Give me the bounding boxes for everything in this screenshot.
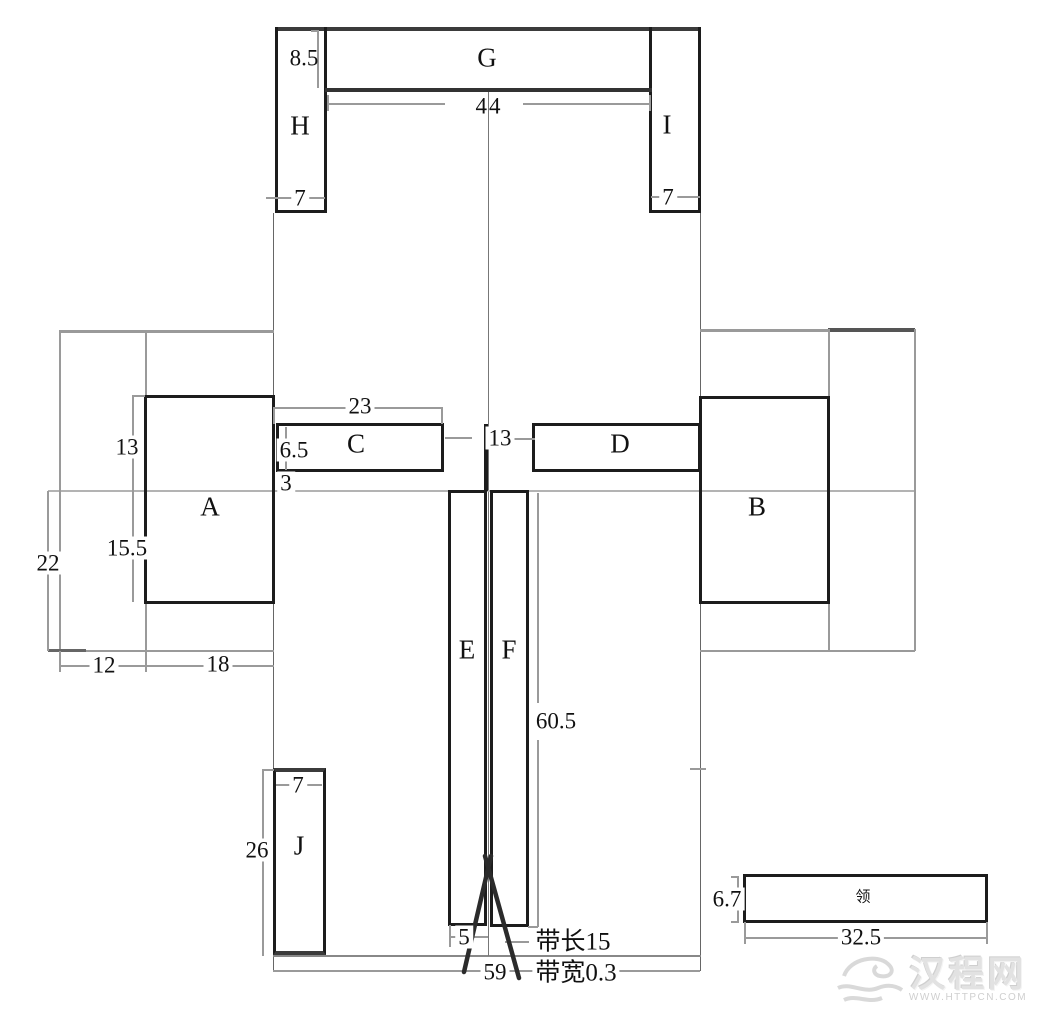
dim-center-gap: 13	[486, 427, 515, 450]
piece-a-label: A	[200, 494, 220, 521]
watermark-logo-wave2	[844, 998, 882, 1000]
watermark-brand: 汉程网	[909, 956, 1026, 992]
dim-a-upper-height: 13	[113, 436, 142, 459]
dim-c-height: 6.5	[277, 439, 312, 462]
dim-a-lower-height: 15.5	[104, 537, 150, 560]
piece-b-label: B	[748, 494, 766, 521]
dim-h-bottom-width: 7	[291, 187, 309, 210]
dim-collar-width: 32.5	[838, 926, 884, 949]
piece-c-label: C	[347, 431, 365, 458]
strap-left	[464, 856, 491, 972]
piece-h-label: H	[290, 113, 310, 140]
dim-e-bottom-width: 5	[455, 926, 473, 949]
watermark-logo	[830, 948, 920, 1010]
piece-collar-label: 领	[855, 891, 870, 906]
dim-g-width: 44	[476, 95, 503, 118]
dim-left-lower-height: 22	[34, 552, 63, 575]
dim-c-width: 23	[346, 395, 375, 418]
dim-fabric-width: 59	[481, 961, 510, 984]
dim-ef-height: 60.5	[536, 710, 576, 733]
strap-length-annotation: 带长15	[532, 930, 613, 955]
dim-collar-height: 6.7	[710, 888, 745, 911]
dim-left-margin: 12	[90, 654, 119, 677]
piece-g-label: G	[477, 45, 497, 72]
dim-j-height: 26	[243, 839, 272, 862]
piece-f-label: F	[501, 637, 516, 664]
dim-g-height: 8.5	[290, 47, 319, 70]
pattern-diagram: G H I A B C D E F J 领 8.5 44 7 7 23 6.5 …	[0, 0, 1037, 1021]
strap-lines	[0, 0, 1037, 1021]
watermark-logo-wave1	[838, 986, 902, 990]
strap-width-annotation: 带宽0.3	[532, 961, 619, 986]
dim-c-to-fold: 3	[277, 472, 295, 495]
dim-j-top-width: 7	[289, 774, 307, 797]
piece-d-label: D	[610, 431, 630, 458]
watermark-url: WWW.HTTPCN.COM	[909, 993, 1027, 1003]
piece-i-label: I	[663, 112, 672, 139]
piece-e-label: E	[459, 637, 476, 664]
dim-a-width: 18	[204, 653, 233, 676]
dim-i-bottom-width: 7	[659, 186, 677, 209]
piece-j-label: J	[294, 833, 305, 860]
watermark-logo-swirl	[844, 959, 892, 977]
